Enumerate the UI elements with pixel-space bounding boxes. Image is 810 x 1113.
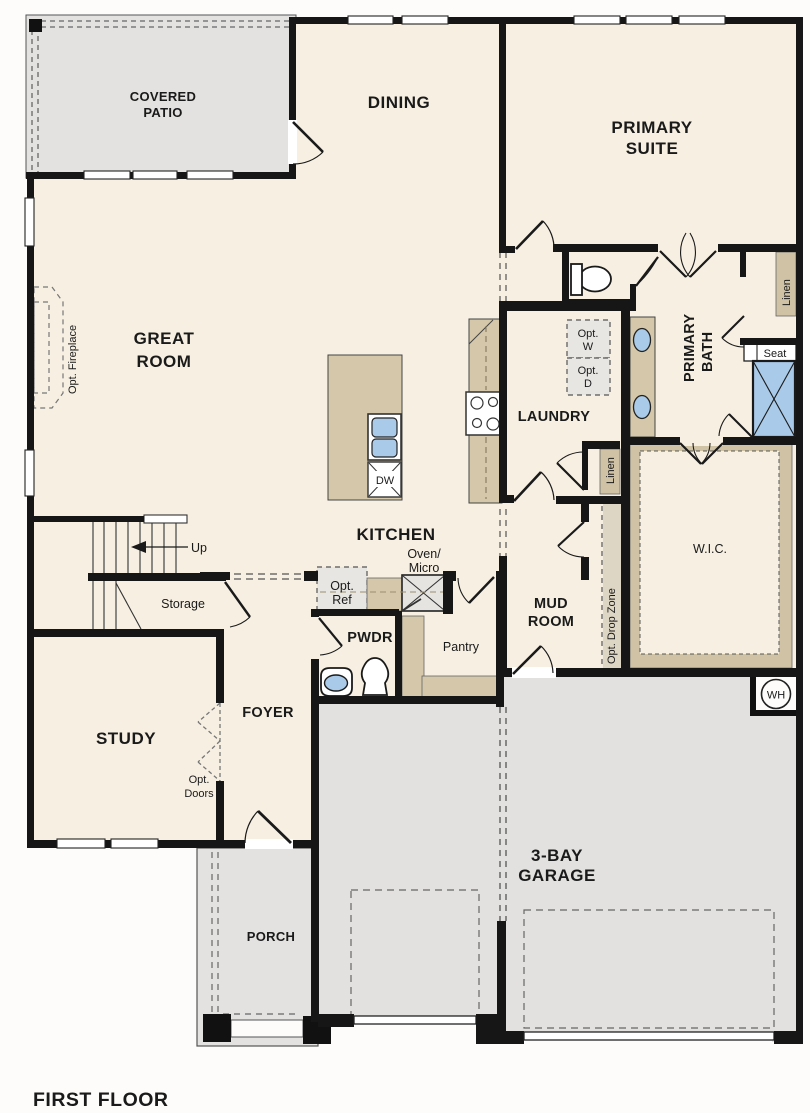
svg-text:W.I.C.: W.I.C. — [693, 542, 727, 556]
svg-text:W: W — [583, 341, 594, 353]
svg-text:GARAGE: GARAGE — [518, 866, 596, 885]
svg-text:GREAT: GREAT — [134, 329, 195, 348]
svg-text:Opt.: Opt. — [578, 328, 599, 340]
svg-text:D: D — [584, 378, 592, 390]
svg-text:LAUNDRY: LAUNDRY — [518, 409, 590, 425]
svg-text:Linen: Linen — [781, 279, 793, 306]
svg-text:ROOM: ROOM — [528, 614, 574, 630]
svg-text:FOYER: FOYER — [242, 705, 294, 721]
svg-text:COVERED: COVERED — [130, 89, 196, 104]
svg-text:PRIMARY: PRIMARY — [611, 118, 692, 137]
svg-text:FIRST FLOOR: FIRST FLOOR — [33, 1089, 169, 1111]
svg-text:SUITE: SUITE — [626, 139, 679, 158]
svg-text:DINING: DINING — [368, 93, 431, 112]
svg-text:Up: Up — [191, 541, 207, 555]
svg-text:DW: DW — [376, 475, 395, 487]
svg-text:Seat: Seat — [764, 348, 787, 360]
svg-text:WH: WH — [767, 690, 785, 702]
svg-text:KITCHEN: KITCHEN — [356, 525, 435, 544]
svg-text:ROOM: ROOM — [137, 352, 192, 371]
svg-text:Doors: Doors — [184, 788, 214, 800]
svg-text:3-BAY: 3-BAY — [531, 846, 583, 865]
svg-text:Pantry: Pantry — [443, 640, 480, 654]
svg-text:PORCH: PORCH — [247, 929, 295, 944]
svg-text:Linen: Linen — [605, 457, 617, 484]
svg-text:Opt. Drop Zone: Opt. Drop Zone — [606, 588, 618, 664]
svg-text:Ref: Ref — [332, 593, 352, 607]
svg-text:Micro: Micro — [409, 561, 440, 575]
svg-text:STUDY: STUDY — [96, 729, 156, 748]
svg-text:Opt.: Opt. — [189, 774, 210, 786]
svg-text:Opt.: Opt. — [330, 579, 354, 593]
svg-text:Storage: Storage — [161, 597, 205, 611]
svg-text:PATIO: PATIO — [143, 105, 182, 120]
svg-text:PRIMARY: PRIMARY — [682, 314, 698, 382]
svg-text:Oven/: Oven/ — [407, 547, 441, 561]
svg-text:Opt. Fireplace: Opt. Fireplace — [67, 325, 79, 394]
svg-text:MUD: MUD — [534, 596, 568, 612]
svg-text:BATH: BATH — [700, 332, 716, 372]
svg-text:Opt.: Opt. — [578, 365, 599, 377]
svg-text:PWDR: PWDR — [347, 630, 393, 646]
